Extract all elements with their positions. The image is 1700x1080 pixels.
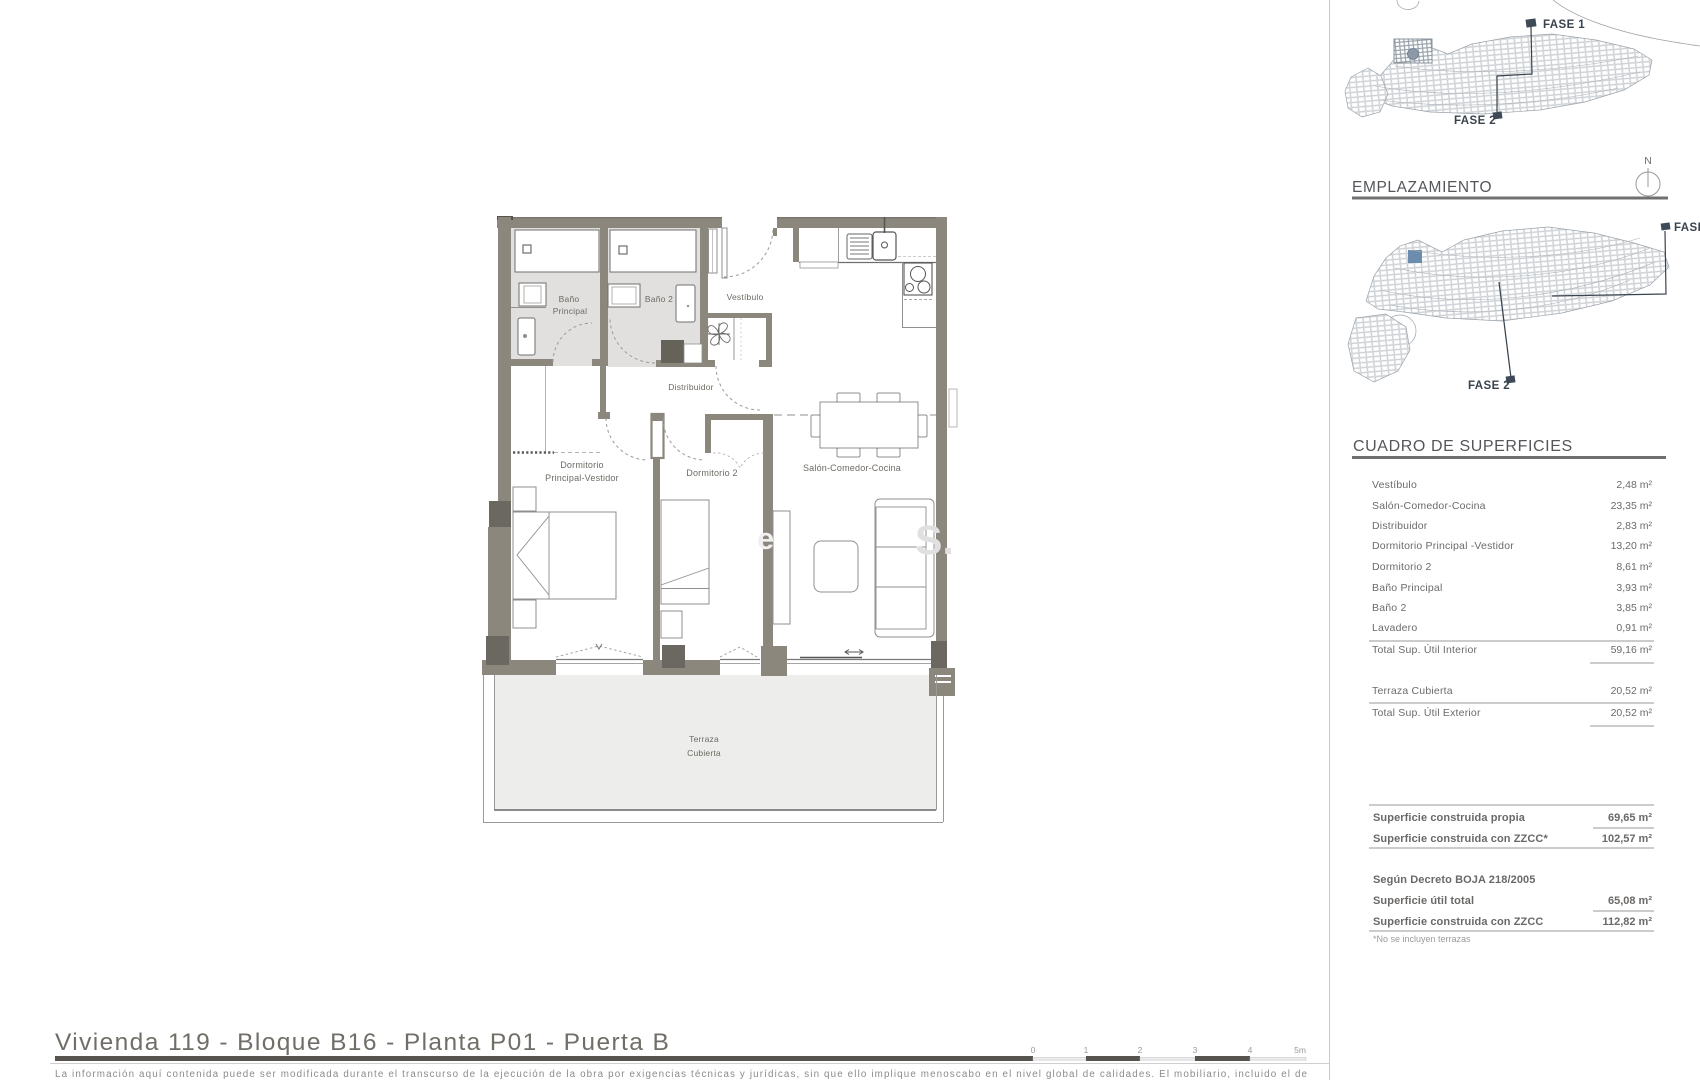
svg-text:Distribuidor: Distribuidor <box>1372 520 1428 532</box>
svg-text:Dormitorio Principal -Vestidor: Dormitorio Principal -Vestidor <box>1372 540 1514 552</box>
svg-text:Total Sup. Útil Interior: Total Sup. Útil Interior <box>1372 643 1477 656</box>
svg-text:FASE 1: FASE 1 <box>1543 19 1585 31</box>
svg-text:59,16 m²: 59,16 m² <box>1611 644 1653 656</box>
svg-text:Baño 2: Baño 2 <box>1372 602 1406 614</box>
svg-text:2,83 m²: 2,83 m² <box>1616 520 1652 532</box>
svg-text:0: 0 <box>1031 1045 1036 1055</box>
svg-text:N: N <box>1644 155 1652 167</box>
svg-text:S.: S. <box>915 517 954 563</box>
svg-text:Baño 2: Baño 2 <box>645 294 673 304</box>
svg-text:Superficie construida con ZZCC: Superficie construida con ZZCC <box>1373 916 1543 928</box>
svg-text:1: 1 <box>1084 1045 1089 1055</box>
svg-text:FASE 2: FASE 2 <box>1454 115 1496 127</box>
svg-text:Superficie construida propia: Superficie construida propia <box>1373 812 1526 824</box>
svg-text:FASE 1: FASE 1 <box>1674 222 1700 234</box>
svg-text:Terraza: Terraza <box>689 734 719 744</box>
svg-text:CUADRO DE SUPERFICIES: CUADRO DE SUPERFICIES <box>1353 438 1573 455</box>
svg-text:e: e <box>757 521 774 556</box>
svg-text:3: 3 <box>1193 1045 1198 1055</box>
svg-text:Baño Principal: Baño Principal <box>1372 582 1443 594</box>
svg-text:3,85 m²: 3,85 m² <box>1616 602 1652 614</box>
svg-text:Vivienda 119 - Bloque B16 - Pl: Vivienda 119 - Bloque B16 - Planta P01 -… <box>55 1029 670 1056</box>
svg-text:Total Sup. Útil Exterior: Total Sup. Útil Exterior <box>1372 706 1481 719</box>
svg-text:Vestíbulo: Vestíbulo <box>1372 479 1417 491</box>
svg-text:EMPLAZAMIENTO: EMPLAZAMIENTO <box>1352 179 1492 196</box>
svg-text:Dormitorio: Dormitorio <box>560 460 604 470</box>
svg-text:65,08 m²: 65,08 m² <box>1608 895 1652 907</box>
svg-text:Dormitorio 2: Dormitorio 2 <box>1372 561 1432 573</box>
svg-text:Baño: Baño <box>559 294 580 304</box>
svg-text:Vestíbulo: Vestíbulo <box>727 292 764 302</box>
svg-text:23,35 m²: 23,35 m² <box>1611 500 1653 512</box>
svg-text:Principal: Principal <box>553 306 587 316</box>
svg-text:0,91 m²: 0,91 m² <box>1616 622 1652 634</box>
svg-text:Lavadero: Lavadero <box>1372 622 1417 634</box>
svg-text:*No se incluyen terrazas: *No se incluyen terrazas <box>1373 934 1471 944</box>
svg-text:Superficie construida con ZZCC: Superficie construida con ZZCC* <box>1373 833 1548 845</box>
svg-text:4: 4 <box>1248 1045 1253 1055</box>
svg-text:13,20 m²: 13,20 m² <box>1611 540 1653 552</box>
svg-text:2: 2 <box>1138 1045 1143 1055</box>
svg-text:Salón-Comedor-Cocina: Salón-Comedor-Cocina <box>803 463 901 473</box>
svg-text:▾: ▾ <box>686 304 689 310</box>
svg-text:FASE 2: FASE 2 <box>1468 380 1510 392</box>
svg-text:Superficie útil total: Superficie útil total <box>1373 895 1474 907</box>
svg-text:2,48 m²: 2,48 m² <box>1616 479 1652 491</box>
svg-text:69,65 m²: 69,65 m² <box>1608 812 1652 824</box>
svg-text:20,52 m²: 20,52 m² <box>1611 685 1653 697</box>
svg-text:3,93 m²: 3,93 m² <box>1616 582 1652 594</box>
svg-text:Dormitorio 2: Dormitorio 2 <box>686 468 737 478</box>
svg-text:5m: 5m <box>1294 1045 1306 1055</box>
svg-text:Cubierta: Cubierta <box>687 748 721 758</box>
svg-text:Según Decreto BOJA 218/2005: Según Decreto BOJA 218/2005 <box>1373 874 1535 886</box>
svg-text:Terraza Cubierta: Terraza Cubierta <box>1372 685 1453 697</box>
svg-text:Distribuidor: Distribuidor <box>668 382 713 392</box>
svg-text:20,52 m²: 20,52 m² <box>1611 707 1653 719</box>
svg-text:112,82 m²: 112,82 m² <box>1602 916 1652 928</box>
svg-text:Salón-Comedor-Cocina: Salón-Comedor-Cocina <box>1372 500 1486 512</box>
svg-text:La información aquí contenida: La información aquí contenida puede ser … <box>55 1069 1308 1080</box>
svg-text:102,57 m²: 102,57 m² <box>1602 833 1652 845</box>
svg-text:Principal-Vestidor: Principal-Vestidor <box>545 473 619 483</box>
svg-text:8,61 m²: 8,61 m² <box>1616 561 1652 573</box>
